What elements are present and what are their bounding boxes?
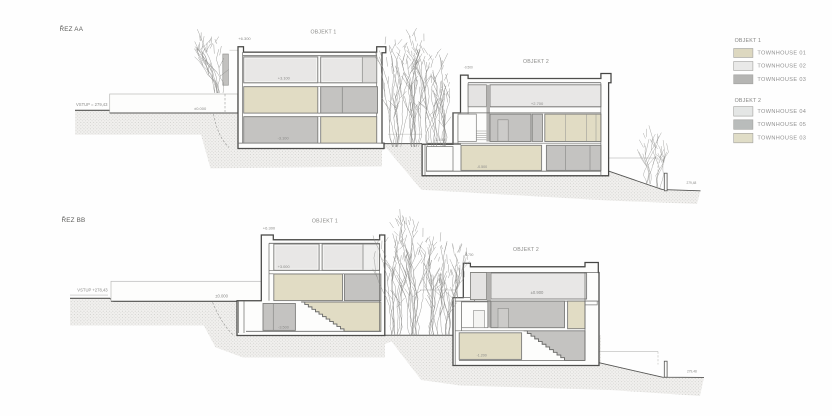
svg-text:+3.000: +3.000 [278,264,291,269]
svg-text:TOWNHOUSE 05: TOWNHOUSE 05 [757,122,806,128]
svg-text:TOWNHOUSE 03: TOWNHOUSE 03 [757,77,806,83]
svg-text:ŘEZ AA: ŘEZ AA [60,24,84,33]
svg-text:OBJEKT 2: OBJEKT 2 [513,247,539,253]
svg-text:OBJEKT 1: OBJEKT 1 [312,219,338,225]
svg-text:TOWNHOUSE 01: TOWNHOUSE 01 [757,51,806,57]
svg-text:TOWNHOUSE 04: TOWNHOUSE 04 [757,109,806,115]
svg-text:OBJEKT 2: OBJEKT 2 [735,98,762,104]
svg-text:279,48: 279,48 [687,181,697,185]
svg-text:VSTUP +278,43: VSTUP +278,43 [77,288,108,293]
svg-text:-1.200: -1.200 [477,353,487,357]
svg-text:OBJEKT 1: OBJEKT 1 [311,29,337,35]
svg-text:VSTUP = 279,43: VSTUP = 279,43 [76,102,108,107]
svg-text:±0.000: ±0.000 [194,106,207,111]
svg-text:-0.500: -0.500 [464,65,473,69]
svg-text:-0.500: -0.500 [477,165,487,169]
svg-text:ŘEZ BB: ŘEZ BB [62,215,86,224]
svg-text:+2.700: +2.700 [531,101,544,106]
svg-text:+3.100: +3.100 [278,75,291,80]
svg-text:±0.900: ±0.900 [531,290,544,295]
svg-text:+6.300: +6.300 [238,36,251,41]
svg-text:TOWNHOUSE 02: TOWNHOUSE 02 [757,64,806,70]
svg-text:-3.100: -3.100 [278,136,290,141]
svg-text:TOWNHOUSE 03: TOWNHOUSE 03 [757,136,806,142]
svg-text:+6.300: +6.300 [263,225,276,230]
svg-text:279,48: 279,48 [687,369,697,373]
svg-text:OBJEKT 1: OBJEKT 1 [735,38,762,44]
svg-text:OBJEKT 2: OBJEKT 2 [523,59,549,65]
svg-text:±0.000: ±0.000 [215,293,228,298]
svg-text:-3.500: -3.500 [278,326,289,330]
